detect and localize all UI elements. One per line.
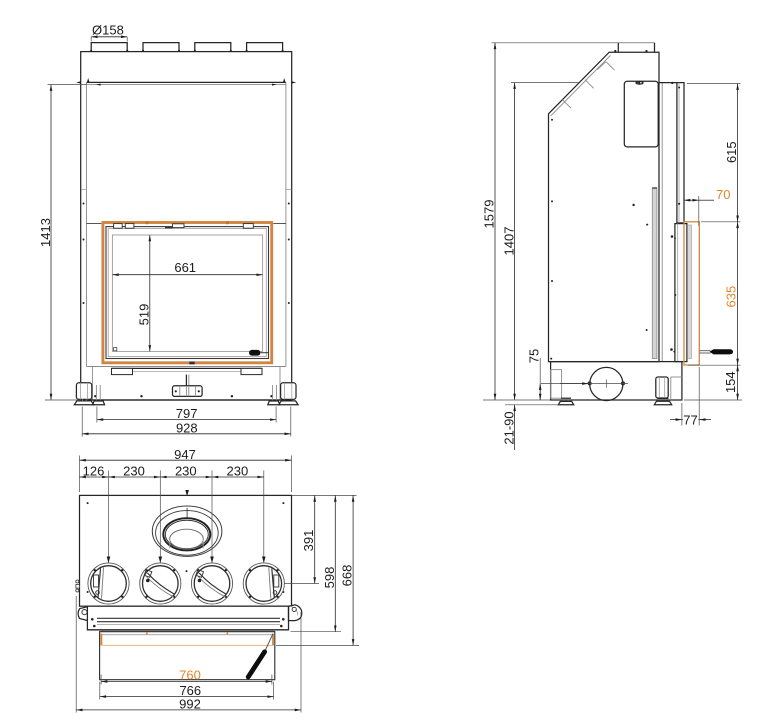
svg-text:75: 75: [526, 349, 541, 363]
svg-text:760: 760: [179, 668, 201, 683]
svg-text:947: 947: [174, 447, 196, 462]
svg-text:70: 70: [716, 187, 730, 202]
svg-text:668: 668: [340, 565, 355, 587]
svg-text:391: 391: [301, 530, 316, 552]
svg-text:661: 661: [174, 260, 196, 275]
svg-text:635: 635: [723, 286, 738, 308]
svg-text:992: 992: [179, 697, 201, 712]
svg-text:77: 77: [683, 412, 697, 427]
svg-text:519: 519: [136, 304, 151, 326]
svg-text:1579: 1579: [482, 200, 497, 229]
svg-text:797: 797: [176, 406, 198, 421]
svg-text:126: 126: [83, 464, 105, 479]
svg-text:230: 230: [175, 464, 197, 479]
svg-text:928: 928: [176, 420, 198, 435]
svg-text:230: 230: [227, 464, 249, 479]
svg-text:1407: 1407: [501, 227, 516, 256]
svg-text:598: 598: [322, 567, 337, 589]
svg-text:230: 230: [123, 464, 145, 479]
svg-text:1413: 1413: [38, 218, 53, 247]
svg-text:21-90: 21-90: [501, 411, 516, 444]
svg-text:154: 154: [723, 371, 738, 393]
svg-text:Ø158: Ø158: [92, 22, 124, 37]
svg-text:615: 615: [724, 141, 739, 163]
